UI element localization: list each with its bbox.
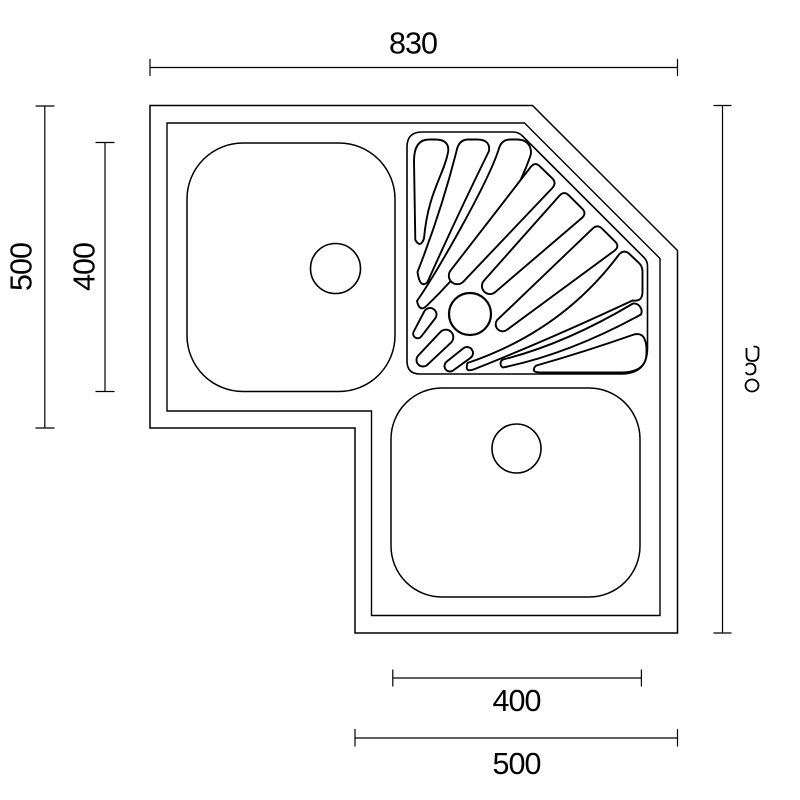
svg-text:400: 400 [68,243,102,291]
svg-text:400: 400 [493,684,541,718]
svg-text:830: 830 [389,27,437,61]
svg-text:500: 500 [5,243,39,291]
svg-text:500: 500 [493,747,541,781]
